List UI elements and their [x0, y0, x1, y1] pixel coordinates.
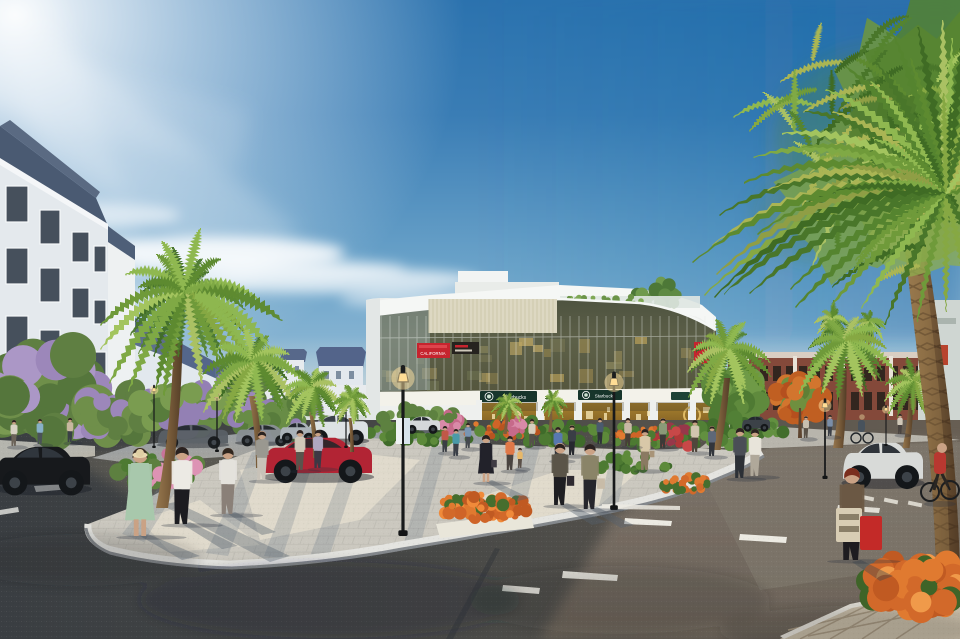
svg-text:CALIFORNIA: CALIFORNIA — [420, 351, 445, 356]
